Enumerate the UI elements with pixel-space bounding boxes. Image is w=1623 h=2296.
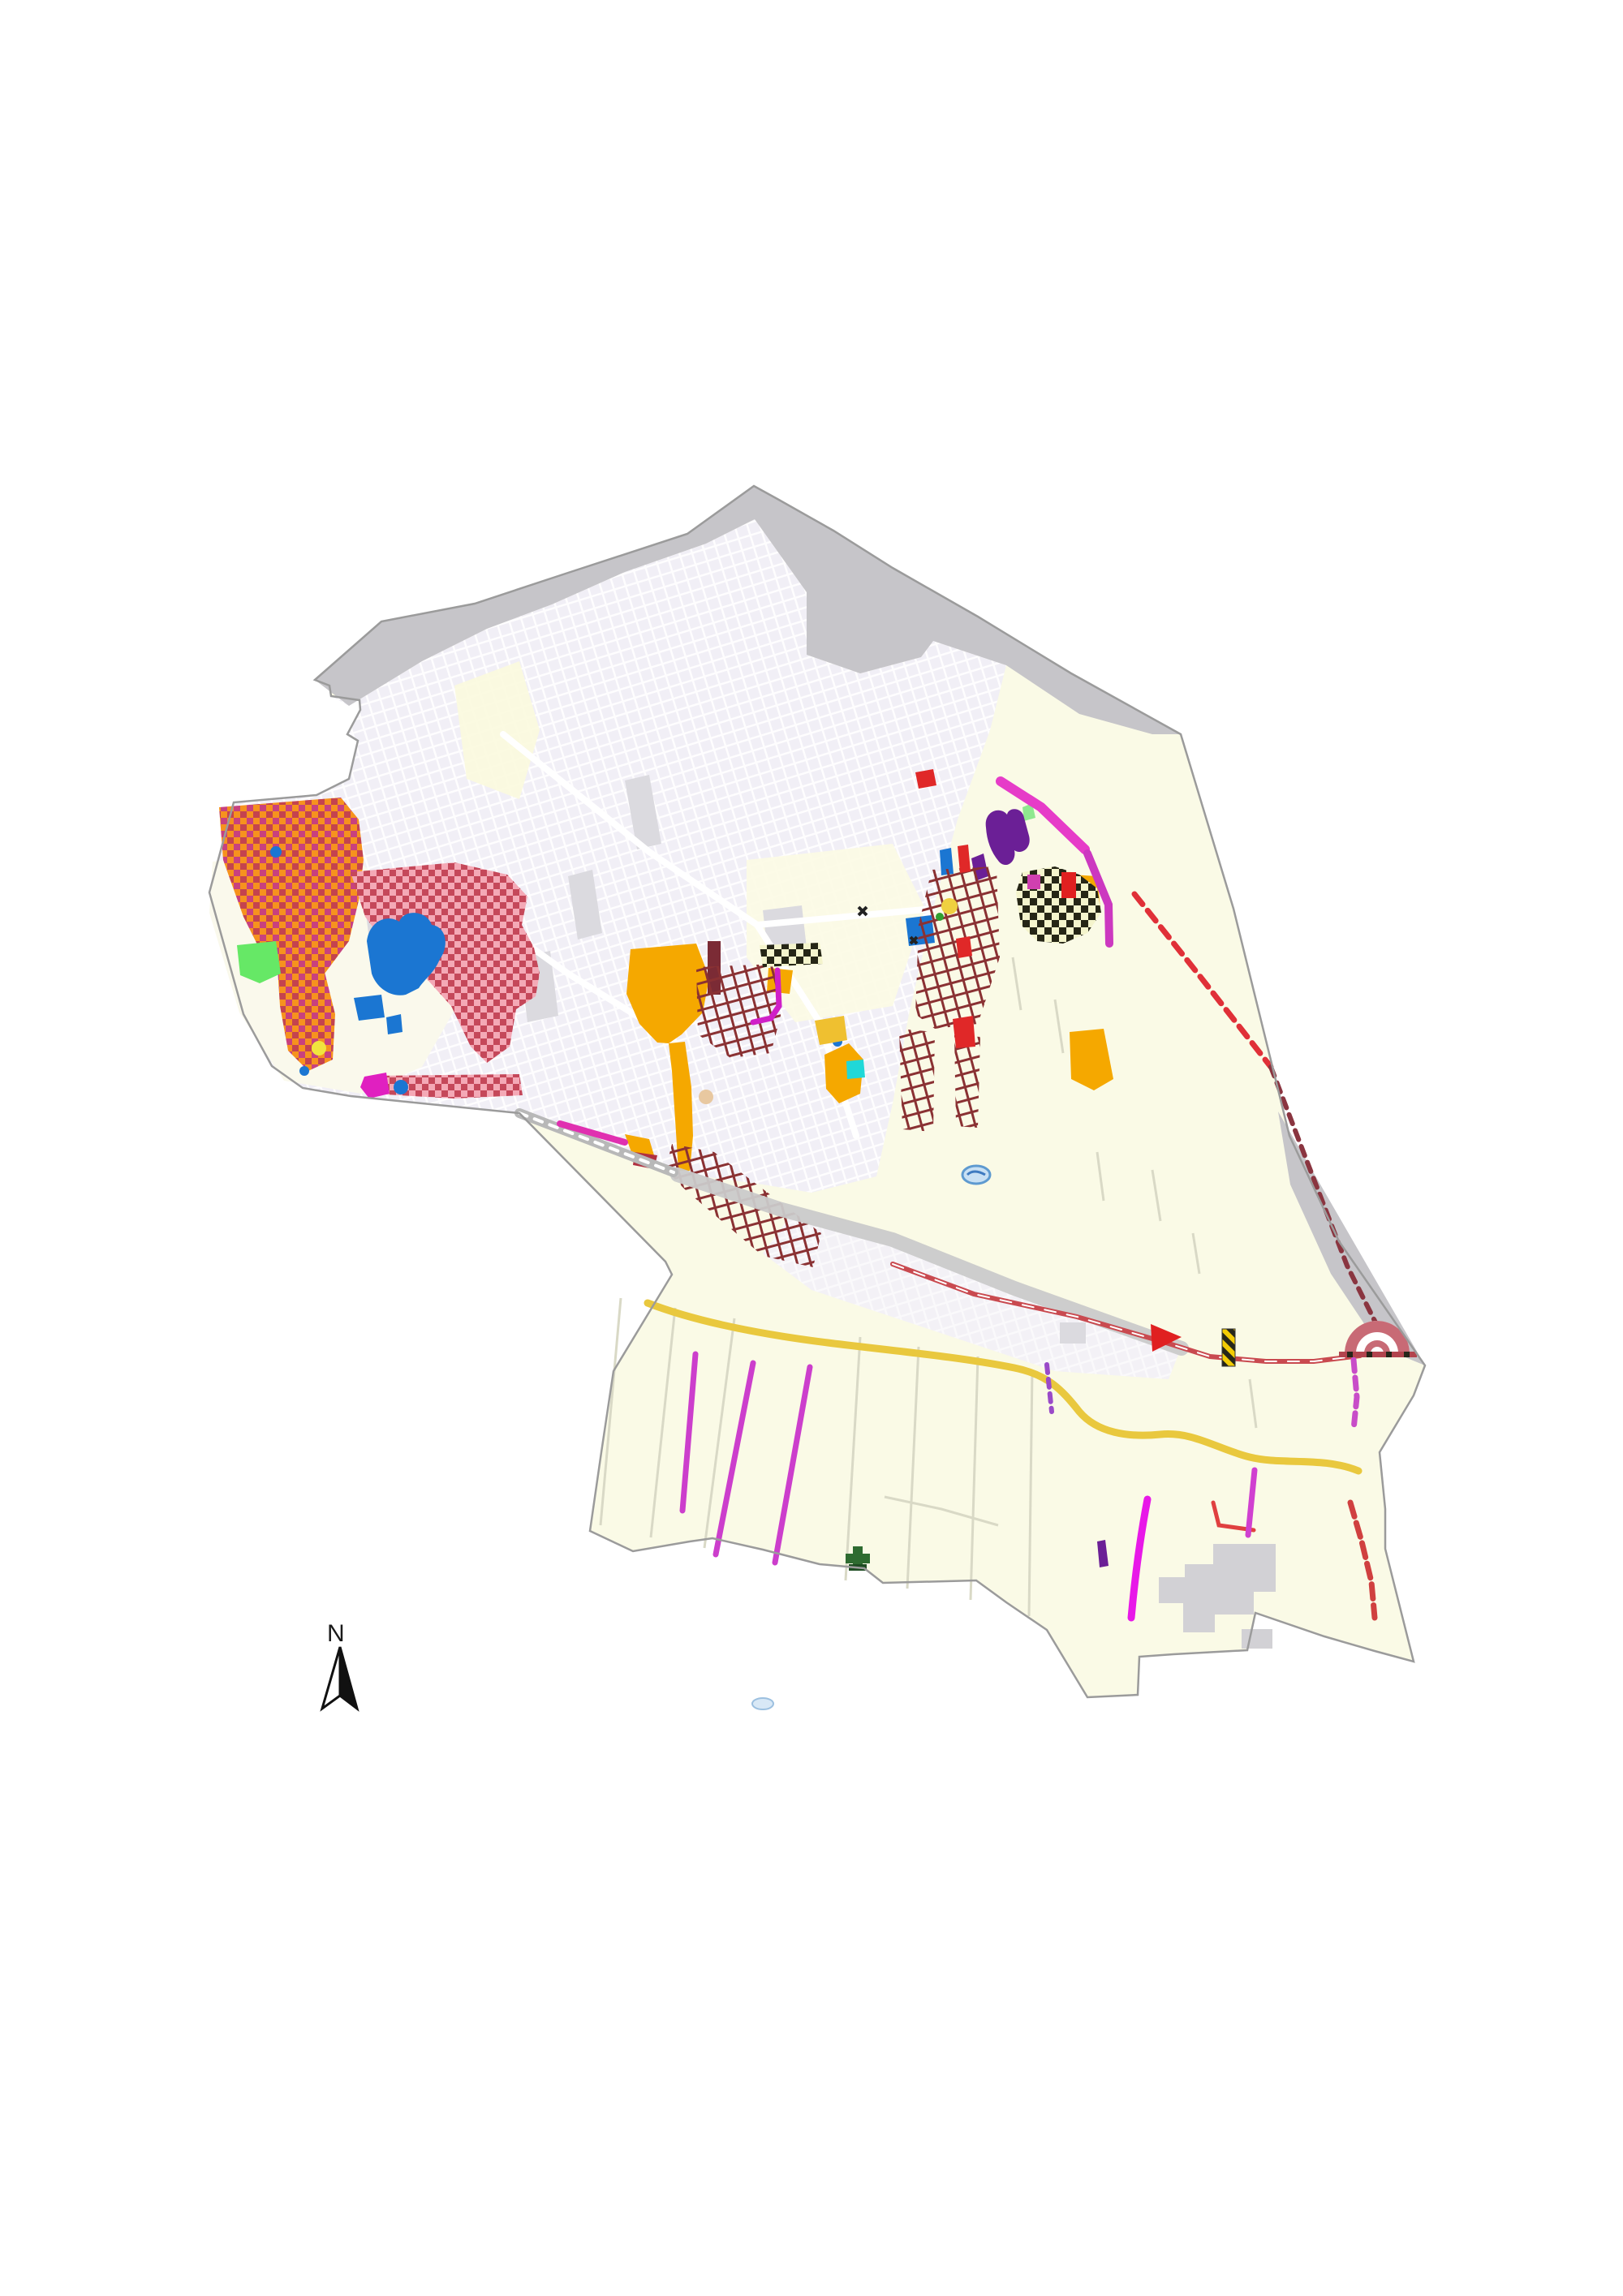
- north-arrow-right-half: [340, 1647, 357, 1709]
- north-arrow: N: [322, 1620, 357, 1709]
- yellow-dot-zone: [941, 898, 958, 914]
- hazard-strip: [1222, 1329, 1235, 1366]
- zoning-map-page: N: [0, 0, 1623, 2296]
- zoning-map-canvas: N: [0, 0, 1623, 2296]
- yellow-dot-zone: [312, 1041, 326, 1056]
- tan-dot-zone: [699, 1090, 713, 1104]
- industrial-gray-small: [1242, 1629, 1272, 1649]
- north-arrow-left-half: [322, 1647, 340, 1709]
- green-dot-zone: [936, 913, 944, 921]
- north-arrow-label: N: [327, 1620, 345, 1647]
- cyan-zone: [846, 1060, 865, 1079]
- magenta-dashed-east: [1354, 1360, 1357, 1430]
